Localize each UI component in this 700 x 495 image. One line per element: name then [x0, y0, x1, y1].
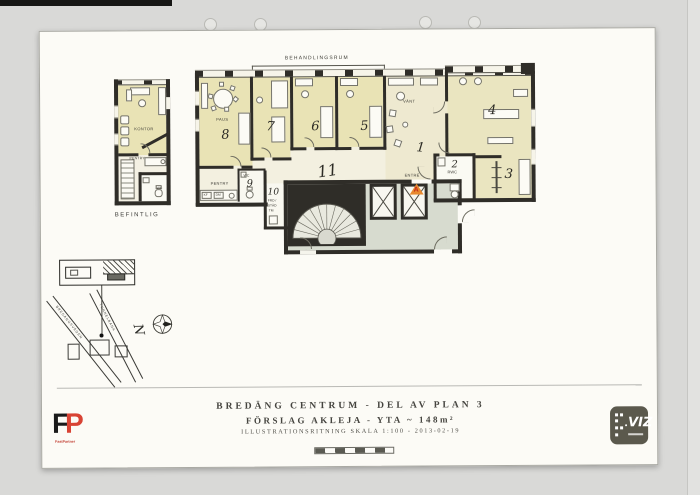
- wall: [196, 202, 268, 206]
- wall: [139, 172, 142, 201]
- room-label-wc9: WC: [244, 175, 250, 179]
- room-label-rwc: RWC: [448, 170, 458, 174]
- wall: [250, 77, 254, 161]
- room-number-5: 5: [360, 120, 369, 133]
- wall: [434, 198, 536, 203]
- wall: [335, 147, 351, 150]
- site-street-right: TUNNELBANA: [87, 290, 144, 384]
- furniture-bench: [518, 159, 530, 195]
- furniture-sink: [229, 193, 235, 199]
- furniture-desk: [126, 89, 132, 101]
- window-band: [114, 79, 170, 85]
- scanner-right-strip: [687, 0, 700, 495]
- elevator-shaft: [370, 184, 397, 220]
- furniture-chair: [386, 125, 394, 133]
- furniture-desk: [130, 87, 150, 95]
- door-arc: [462, 209, 475, 222]
- room-number-9: 9: [247, 180, 253, 190]
- existing-plan: KONTOR PENTRY WC: [112, 77, 177, 217]
- viz-colon-dot: [625, 424, 627, 426]
- room-label-pentry: PENTRY: [211, 182, 229, 186]
- scale-bar: [314, 447, 394, 454]
- behandlingsrum-label: BEHANDLINGSRUM: [267, 56, 367, 62]
- furniture-desk: [340, 78, 358, 86]
- furniture-bed: [271, 80, 288, 108]
- spiral-stair: [290, 186, 364, 244]
- furniture-sink: [437, 157, 445, 166]
- furniture-chair: [389, 109, 397, 117]
- wall: [335, 76, 338, 150]
- furniture-chair: [459, 77, 467, 85]
- wall: [458, 223, 462, 253]
- entrance-label: ENTRÉ: [405, 174, 420, 178]
- furniture-bench: [487, 137, 513, 144]
- title-separator-line: [57, 384, 642, 389]
- wall: [290, 76, 293, 150]
- room-number-6: 6: [311, 120, 319, 133]
- wall: [139, 172, 169, 175]
- wall: [148, 153, 168, 156]
- site-street-left: BREDÄNGSVÄGEN: [44, 296, 122, 390]
- window: [195, 119, 199, 132]
- furniture-cabinet: [120, 126, 129, 135]
- viz-sub-line: [628, 433, 643, 435]
- room-number-10: 10: [268, 188, 280, 197]
- furniture-chair: [219, 82, 224, 87]
- room-label-paus: PAUS: [216, 118, 228, 122]
- furniture-toilet: [246, 191, 254, 199]
- site-map: BREDÄNGSVÄGEN TUNNELBANA N: [51, 251, 212, 382]
- furniture-chair: [346, 90, 354, 98]
- site-building-detail: [107, 273, 125, 280]
- furniture-chair: [474, 77, 482, 85]
- punch-hole: [468, 16, 481, 29]
- furniture-shelf: [158, 87, 166, 115]
- wall: [264, 226, 291, 229]
- site-building-detail: [70, 270, 78, 276]
- furniture-sofa: [420, 77, 438, 85]
- fastpartner-logo-p: P: [65, 410, 84, 438]
- viz-logo: VIZ: [610, 406, 648, 444]
- room-number-7: 7: [266, 120, 275, 134]
- site-block: [68, 344, 80, 360]
- furniture-shelf: [238, 113, 250, 145]
- stair: [120, 159, 134, 199]
- title-line2: FÖRSLAG AKLEJA - YTA ~ 148m²: [42, 414, 659, 427]
- viz-filmstrip-dot: [615, 413, 618, 416]
- title-line1: BREDÄNG CENTRUM - DEL AV PLAN 3: [42, 400, 659, 413]
- furniture-chair: [138, 99, 146, 107]
- wall: [284, 180, 412, 185]
- appliance-label-tm: TM: [269, 209, 274, 212]
- wall: [195, 166, 233, 169]
- viz-filmstrip-dot: [615, 433, 618, 436]
- wall: [433, 153, 436, 201]
- wall: [383, 76, 386, 150]
- wall: [475, 155, 501, 158]
- furniture-table: [213, 89, 233, 109]
- wall: [264, 170, 267, 229]
- furniture-wall-bars: [492, 167, 502, 168]
- wall: [115, 201, 171, 205]
- viz-filmstrip-dot: [620, 426, 623, 429]
- furniture-table: [402, 122, 408, 128]
- window: [531, 109, 535, 127]
- appliance-label-kf: KF: [204, 194, 208, 197]
- site-block: [90, 339, 110, 355]
- room-number-1: 1: [416, 141, 426, 155]
- viz-filmstrip-dot: [615, 419, 618, 422]
- furniture-stool: [256, 97, 263, 104]
- wall: [238, 169, 266, 171]
- door-gap: [300, 250, 316, 254]
- furniture-wall-bars: [492, 177, 502, 178]
- punch-hole: [419, 16, 432, 29]
- site-block: [115, 345, 128, 357]
- north-letter: N: [131, 323, 146, 337]
- wall: [250, 158, 264, 161]
- window: [531, 149, 535, 165]
- compass-rose-icon: [151, 313, 173, 335]
- room-number-4: 4: [488, 104, 496, 117]
- entrance-marker-letter: A: [414, 187, 419, 194]
- fastpartner-logo: F P FastPartner: [50, 409, 110, 453]
- room-number-8: 8: [221, 128, 230, 142]
- window: [195, 91, 199, 106]
- window: [114, 105, 118, 118]
- fastpartner-logo-text: FastPartner: [55, 441, 75, 445]
- wall: [531, 71, 536, 202]
- existing-plan-caption: BEFINTLIG: [115, 212, 160, 218]
- wall: [284, 180, 288, 254]
- furniture-cabinet: [120, 115, 129, 124]
- furniture-wall-bars: [492, 187, 502, 188]
- furniture-chair: [224, 107, 229, 112]
- site-hatched-area: [103, 260, 134, 274]
- room-label-wc: WC: [157, 187, 163, 190]
- wall: [272, 157, 291, 160]
- corridor-number-11: 11: [316, 162, 338, 181]
- wall: [447, 153, 475, 156]
- title-line3: ILLUSTRATIONSRITNING SKALA 1:100 - 2013-…: [42, 427, 659, 437]
- furniture-sink: [143, 177, 150, 183]
- furniture-sofa: [388, 78, 414, 86]
- wall: [472, 153, 475, 201]
- viz-logo-text: VIZ: [628, 416, 652, 429]
- room-label-pentry: PENTRY: [129, 157, 145, 161]
- scanner-dark-strip: [0, 0, 172, 6]
- viz-filmstrip-dot: [620, 413, 623, 416]
- scanned-sheet: KONTOR PENTRY WC BEFINTLIG BEHANDLINGSRU…: [0, 0, 700, 495]
- wall: [290, 147, 306, 150]
- furniture-cabinet: [120, 137, 129, 146]
- room-number-3: 3: [504, 168, 513, 182]
- wall: [359, 147, 386, 150]
- wall: [238, 169, 240, 202]
- window: [166, 97, 170, 109]
- street-name-left: BREDÄNGSVÄGEN: [55, 305, 83, 340]
- drawing-sheet: KONTOR PENTRY WC BEFINTLIG BEHANDLINGSRU…: [39, 27, 659, 469]
- furniture-bed: [369, 106, 382, 138]
- site-location-dot: [100, 333, 104, 337]
- furniture-sink: [160, 159, 165, 164]
- room-label-frd: FRD /: [268, 199, 277, 202]
- furniture-desk: [295, 78, 313, 86]
- window: [114, 133, 118, 145]
- room-label-vant: VÄNT: [403, 100, 415, 104]
- main-plan: BEHANDLINGSRUM: [183, 51, 540, 265]
- furniture-bed: [320, 106, 333, 138]
- appliance-label-dm: DM: [216, 194, 221, 197]
- elevator-x-icon: [373, 187, 394, 217]
- wall: [445, 71, 448, 101]
- viz-filmstrip-dot: [615, 426, 618, 429]
- furniture-toilet: [451, 190, 459, 198]
- furniture-washer: [269, 215, 278, 224]
- room-label-kontor: KONTOR: [134, 127, 153, 131]
- room-label-stad: STÄD: [268, 204, 277, 207]
- furniture-chair: [301, 90, 309, 98]
- furniture-equipment: [513, 89, 528, 97]
